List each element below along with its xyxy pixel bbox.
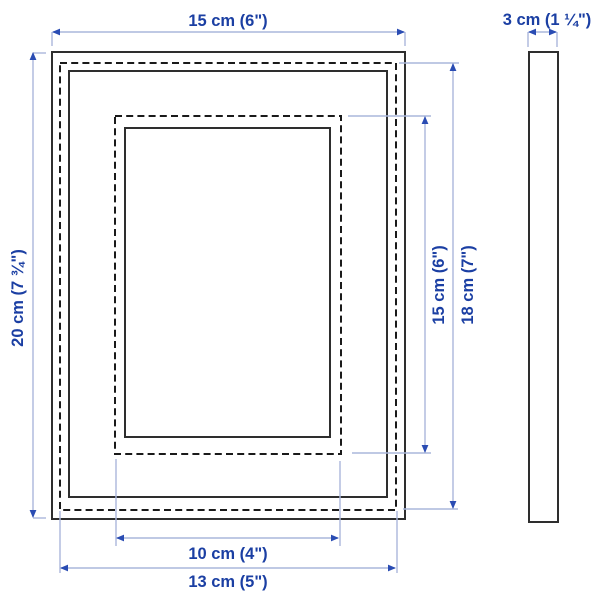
front-view xyxy=(52,52,405,519)
dim-matted-picture-width: 10 cm (4") xyxy=(116,459,340,563)
dim-matted-picture-height: 15 cm (6") xyxy=(348,116,448,453)
matted-picture-dashed-outline xyxy=(115,116,341,454)
product-dimension-diagram: 15 cm (6") 20 cm (7 ¾") 3 cm (1 ¼") xyxy=(0,0,600,600)
matted-picture-height-label: 15 cm (6") xyxy=(430,245,448,324)
arrow-down-icon xyxy=(422,445,429,453)
dimension-drawing: 15 cm (6") 20 cm (7 ¾") 3 cm (1 ¼") xyxy=(0,0,600,600)
arrow-up-icon xyxy=(450,63,457,71)
picture-height-label: 18 cm (7") xyxy=(459,245,477,324)
arrow-down-icon xyxy=(30,510,37,518)
dim-depth: 3 cm (1 ¼") xyxy=(503,11,592,47)
arrow-left-icon xyxy=(116,535,124,542)
dim-frame-height: 20 cm (7 ¾") xyxy=(9,52,46,518)
mat-opening-edge xyxy=(125,128,330,437)
arrow-left-icon xyxy=(52,29,60,36)
arrow-down-icon xyxy=(450,501,457,509)
frame-height-label: 20 cm (7 ¾") xyxy=(9,249,27,347)
arrow-right-icon xyxy=(549,29,557,36)
arrow-right-icon xyxy=(388,565,396,572)
mat-outer-edge xyxy=(69,71,387,497)
matted-picture-width-label: 10 cm (4") xyxy=(188,545,267,563)
side-view xyxy=(529,52,558,522)
arrow-right-icon xyxy=(331,535,339,542)
depth-label: 3 cm (1 ¼") xyxy=(503,11,592,29)
arrow-right-icon xyxy=(397,29,405,36)
dim-frame-width: 15 cm (6") xyxy=(52,12,405,46)
picture-size-dashed-outline xyxy=(60,63,396,510)
frame-side-profile xyxy=(529,52,558,522)
arrow-up-icon xyxy=(422,116,429,124)
frame-outer-edge xyxy=(52,52,405,519)
picture-width-label: 13 cm (5") xyxy=(188,573,267,591)
arrow-left-icon xyxy=(528,29,536,36)
arrow-left-icon xyxy=(60,565,68,572)
frame-width-label: 15 cm (6") xyxy=(188,12,267,30)
